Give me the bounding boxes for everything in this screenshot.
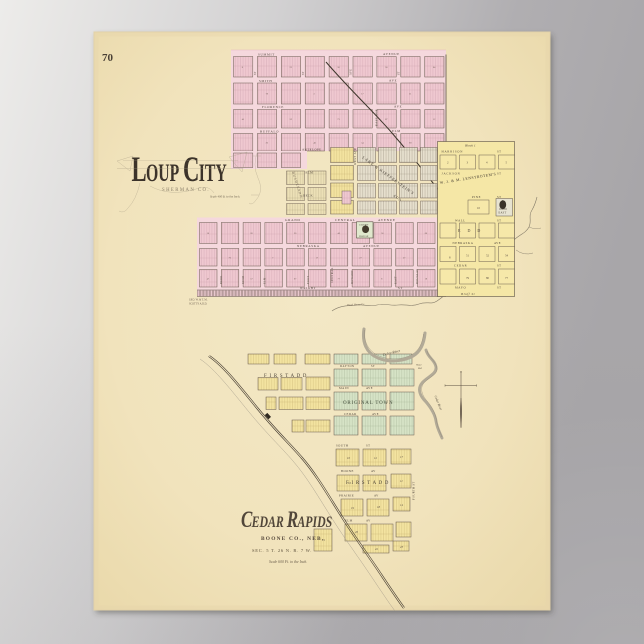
svg-text:Scale 600 Ft. to the Inch.: Scale 600 Ft. to the Inch. xyxy=(269,560,307,564)
svg-text:ANTELOPE: ANTELOPE xyxy=(302,148,322,152)
svg-text:ST: ST xyxy=(497,219,502,223)
svg-text:22: 22 xyxy=(375,547,379,551)
svg-text:ST: ST xyxy=(366,444,370,448)
svg-text:HOWARD: HOWARD xyxy=(351,270,354,284)
svg-text:MAYO: MAYO xyxy=(455,286,467,290)
svg-text:Bluff St: Bluff St xyxy=(461,292,476,296)
svg-text:SOUTH: SOUTH xyxy=(336,444,349,448)
svg-text:AVENUE: AVENUE xyxy=(363,244,380,248)
svg-text:CEDAR: CEDAR xyxy=(454,264,467,268)
svg-text:AVE: AVE xyxy=(366,386,373,390)
svg-text:AVE: AVE xyxy=(389,79,397,83)
svg-text:NEBRASKA: NEBRASKA xyxy=(453,241,474,245)
svg-text:CENTRAL: CENTRAL xyxy=(331,267,334,283)
svg-text:Mill: Mill xyxy=(417,367,422,370)
svg-text:COURT: COURT xyxy=(359,223,369,226)
svg-text:RUSH: RUSH xyxy=(242,275,245,284)
svg-text:SEC. 5 T. 26 N. R. 7 W.: SEC. 5 T. 26 N. R. 7 W. xyxy=(252,548,312,553)
svg-text:NEBRASKA: NEBRASKA xyxy=(297,244,320,248)
svg-text:18: 18 xyxy=(377,505,381,509)
svg-text:AVE: AVE xyxy=(394,105,402,109)
svg-text:SHERMAN CO.: SHERMAN CO. xyxy=(162,188,210,193)
svg-text:ST: ST xyxy=(371,365,375,368)
svg-text:F I R S T A D D: F I R S T A D D xyxy=(264,374,307,379)
svg-text:WALL: WALL xyxy=(455,219,466,223)
svg-text:54: 54 xyxy=(505,254,509,258)
svg-text:ST: ST xyxy=(497,286,502,290)
svg-text:WEST AVE: WEST AVE xyxy=(354,148,357,166)
svg-text:F I R S T A D D: F I R S T A D D xyxy=(346,481,389,486)
svg-text:12: 12 xyxy=(374,456,378,460)
svg-text:AVENUE: AVENUE xyxy=(378,218,396,222)
svg-text:ELM: ELM xyxy=(392,129,401,133)
svg-text:MAIN: MAIN xyxy=(339,386,349,390)
svg-text:AV: AV xyxy=(374,494,379,498)
svg-text:Scale 400 ft. to the Inch.: Scale 400 ft. to the Inch. xyxy=(210,195,240,199)
svg-text:AV: AV xyxy=(371,469,376,473)
svg-text:EAST: EAST xyxy=(499,212,507,215)
svg-text:DAYTON: DAYTON xyxy=(340,365,355,368)
svg-text:PINE: PINE xyxy=(472,195,481,199)
svg-text:SCOTT'S A.D.D.: SCOTT'S A.D.D. xyxy=(189,303,208,306)
svg-text:ST: ST xyxy=(398,286,403,290)
svg-text:80: 80 xyxy=(486,276,490,280)
svg-text:ST: ST xyxy=(497,264,502,268)
svg-text:HARRISON: HARRISON xyxy=(442,150,464,154)
svg-text:19: 19 xyxy=(351,506,355,510)
svg-text:BUFFALO: BUFFALO xyxy=(260,129,279,133)
svg-text:ST: ST xyxy=(254,71,257,75)
svg-text:E D D: E D D xyxy=(458,228,483,233)
svg-text:23: 23 xyxy=(400,545,404,549)
svg-text:ST: ST xyxy=(302,71,305,75)
svg-text:BOONE CO., NEB.: BOONE CO., NEB. xyxy=(261,536,324,542)
svg-text:51: 51 xyxy=(466,254,470,258)
svg-text:JACKSON: JACKSON xyxy=(442,172,461,176)
svg-text:10: 10 xyxy=(347,456,351,460)
svg-text:GEO. W. & T. M.: GEO. W. & T. M. xyxy=(189,299,208,302)
svg-text:PRAIRIE: PRAIRIE xyxy=(339,494,354,498)
svg-text:SUMMIT: SUMMIT xyxy=(258,53,275,57)
svg-text:DECK: DECK xyxy=(303,194,314,198)
svg-text:ORIGINAL TOWN: ORIGINAL TOWN xyxy=(343,401,393,406)
svg-text:HOUSE: HOUSE xyxy=(359,235,369,238)
svg-text:AVENUE: AVENUE xyxy=(383,52,400,56)
svg-text:ELM: ELM xyxy=(264,277,267,284)
svg-text:FLORENCE: FLORENCE xyxy=(262,105,284,109)
svg-text:77: 77 xyxy=(505,276,509,280)
svg-text:16: 16 xyxy=(348,481,352,485)
svg-text:10: 10 xyxy=(477,206,481,210)
svg-text:79: 79 xyxy=(466,276,470,280)
svg-text:14: 14 xyxy=(400,503,404,507)
svg-text:52: 52 xyxy=(486,254,490,258)
svg-text:Block 1: Block 1 xyxy=(465,144,476,148)
svg-text:AVE: AVE xyxy=(372,412,379,416)
svg-text:AVE: AVE xyxy=(350,69,353,75)
svg-text:ST: ST xyxy=(497,172,502,176)
svg-text:20: 20 xyxy=(355,530,359,534)
svg-text:ST: ST xyxy=(497,150,502,154)
svg-text:FOURTH ST: FOURTH ST xyxy=(413,481,416,500)
svg-text:ELM: ELM xyxy=(306,171,314,175)
svg-text:DOUGLAS: DOUGLAS xyxy=(416,269,419,284)
svg-text:CENTRAL: CENTRAL xyxy=(335,218,356,222)
svg-text:BURR: BURR xyxy=(220,275,223,284)
svg-text:70: 70 xyxy=(102,52,114,64)
svg-text:AVE: AVE xyxy=(494,241,501,245)
svg-text:EAST: EAST xyxy=(394,276,397,284)
svg-text:AV: AV xyxy=(366,519,371,523)
svg-text:FOOT: FOOT xyxy=(307,276,310,284)
svg-text:CEDAR: CEDAR xyxy=(344,412,357,416)
svg-text:BOONE: BOONE xyxy=(341,469,354,473)
svg-text:WRIGHT: WRIGHT xyxy=(300,286,316,290)
svg-text:ST: ST xyxy=(397,71,400,75)
svg-text:SMITH: SMITH xyxy=(259,79,272,83)
svg-text:GRAND: GRAND xyxy=(285,218,301,222)
svg-text:17: 17 xyxy=(400,455,404,459)
